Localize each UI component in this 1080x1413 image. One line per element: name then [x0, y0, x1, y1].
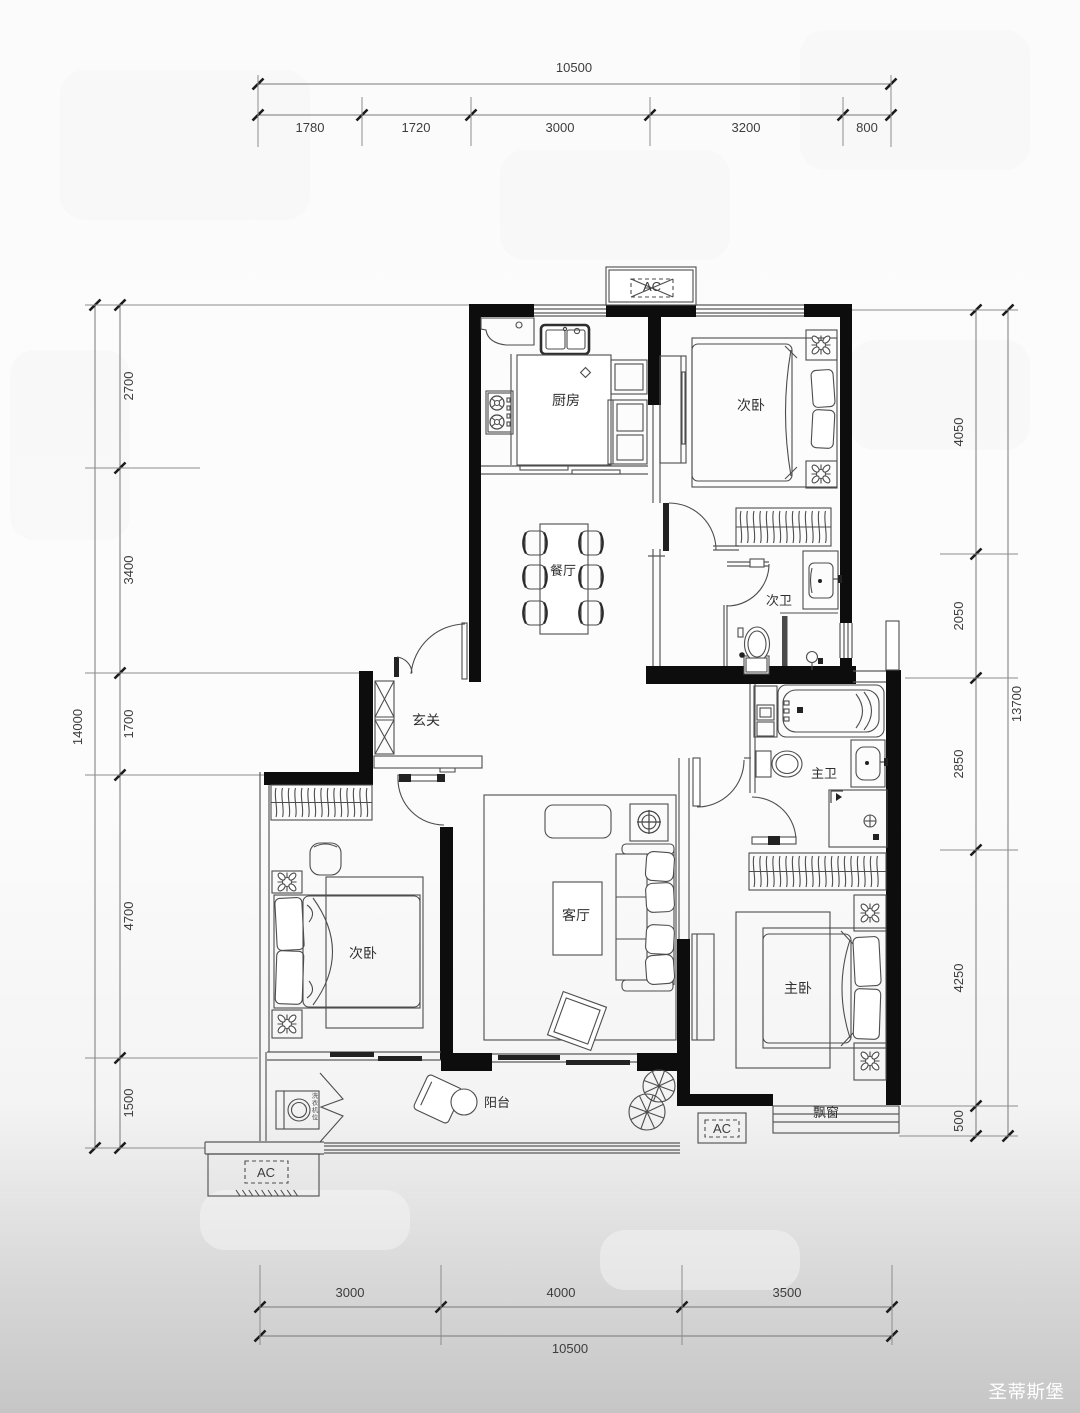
svg-text:3200: 3200 — [732, 120, 761, 135]
svg-text:1720: 1720 — [402, 120, 431, 135]
svg-text:14000: 14000 — [70, 709, 85, 745]
svg-text:10500: 10500 — [556, 60, 592, 75]
svg-text:3500: 3500 — [773, 1285, 802, 1300]
svg-text:13700: 13700 — [1009, 686, 1024, 722]
svg-text:4000: 4000 — [547, 1285, 576, 1300]
svg-text:1500: 1500 — [121, 1089, 136, 1118]
svg-text:AC: AC — [643, 279, 661, 294]
svg-text:2050: 2050 — [951, 602, 966, 631]
svg-text:3400: 3400 — [121, 556, 136, 585]
svg-text:800: 800 — [856, 120, 878, 135]
svg-text:2700: 2700 — [121, 372, 136, 401]
svg-text:AC: AC — [713, 1121, 731, 1136]
svg-text:4250: 4250 — [951, 964, 966, 993]
svg-text:4050: 4050 — [951, 418, 966, 447]
svg-text:2850: 2850 — [951, 750, 966, 779]
svg-text:AC: AC — [257, 1165, 275, 1180]
svg-text:1700: 1700 — [121, 710, 136, 739]
svg-text:1780: 1780 — [296, 120, 325, 135]
svg-text:3000: 3000 — [336, 1285, 365, 1300]
svg-text:500: 500 — [951, 1110, 966, 1132]
svg-text:10500: 10500 — [552, 1341, 588, 1356]
svg-text:3000: 3000 — [546, 120, 575, 135]
svg-text:4700: 4700 — [121, 902, 136, 931]
